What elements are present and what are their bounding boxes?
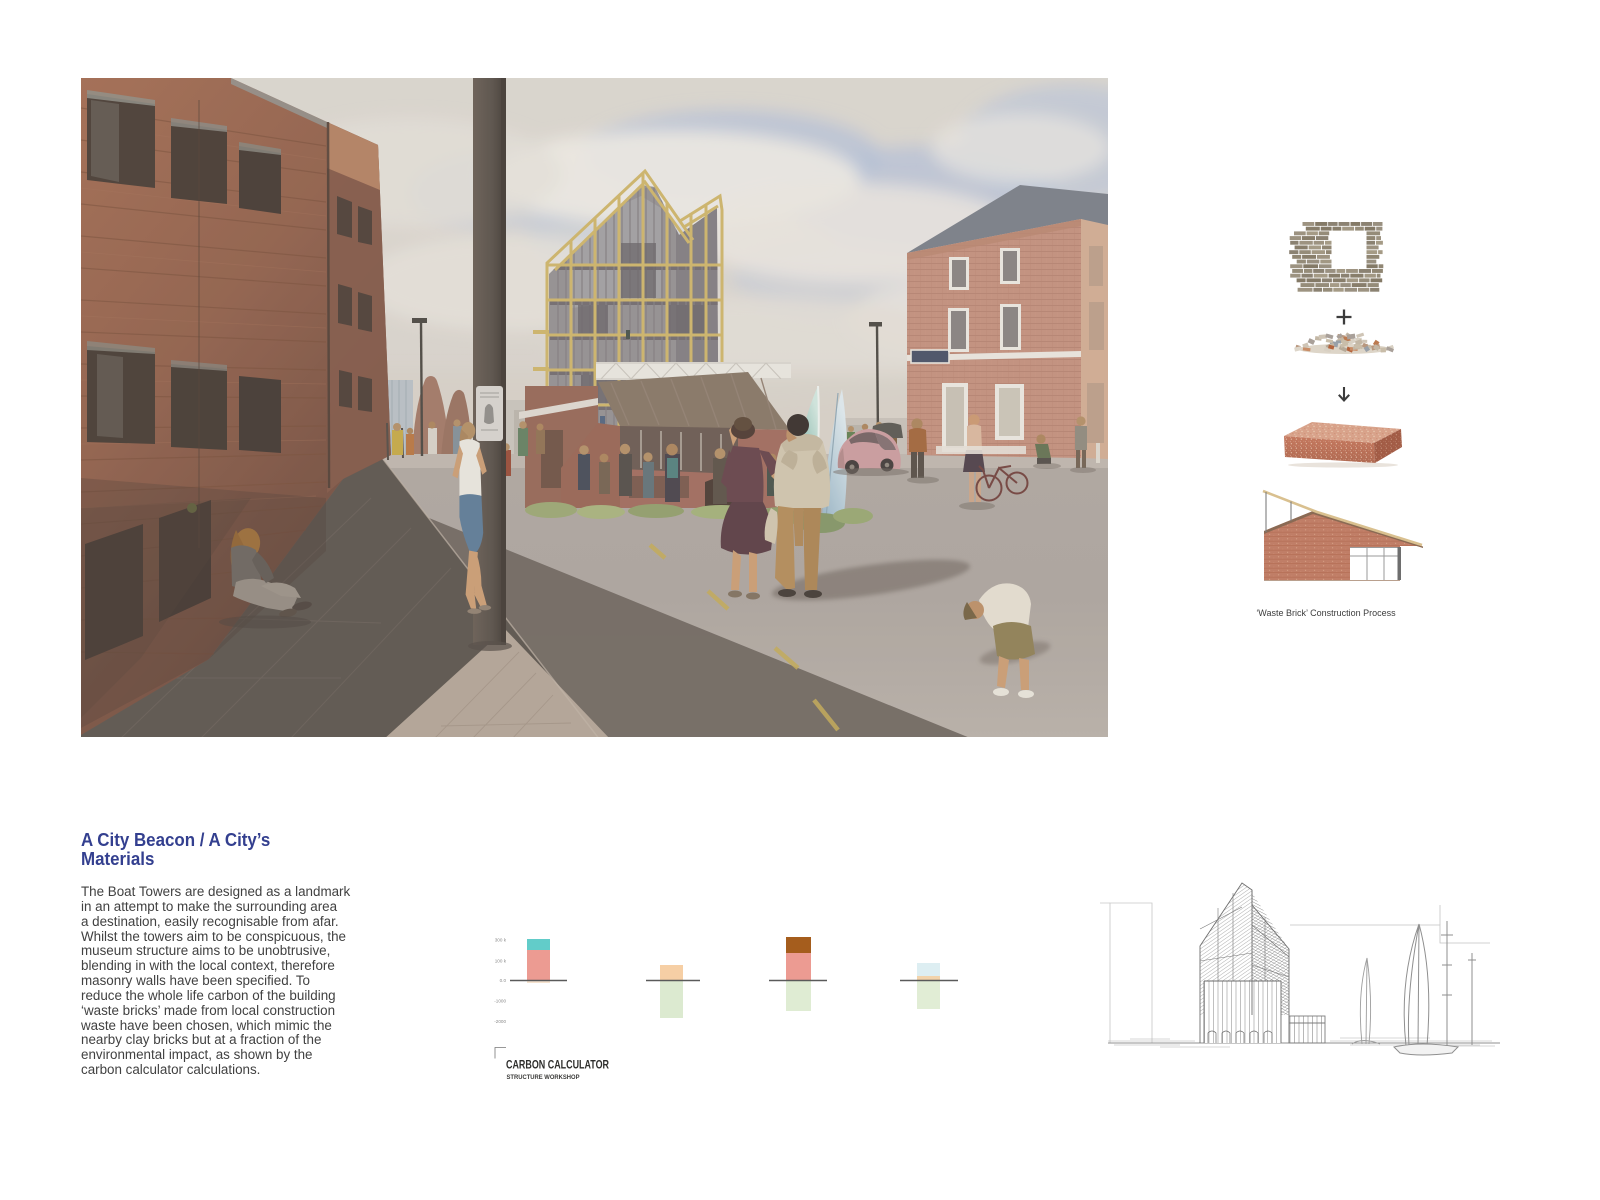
svg-text:-1000: -1000 — [494, 999, 506, 1004]
svg-text:CARBON CALCULATOR: CARBON CALCULATOR — [506, 1060, 610, 1072]
svg-text:300 k: 300 k — [495, 938, 507, 943]
svg-text:0.0: 0.0 — [500, 978, 507, 983]
svg-text:‘Waste Brick’ Construction Pro: ‘Waste Brick’ Construction Process — [1256, 608, 1396, 618]
svg-text:STRUCTURE WORKSHOP: STRUCTURE WORKSHOP — [507, 1074, 581, 1081]
svg-text:100 k: 100 k — [495, 959, 507, 964]
svg-text:-2000: -2000 — [494, 1019, 506, 1024]
